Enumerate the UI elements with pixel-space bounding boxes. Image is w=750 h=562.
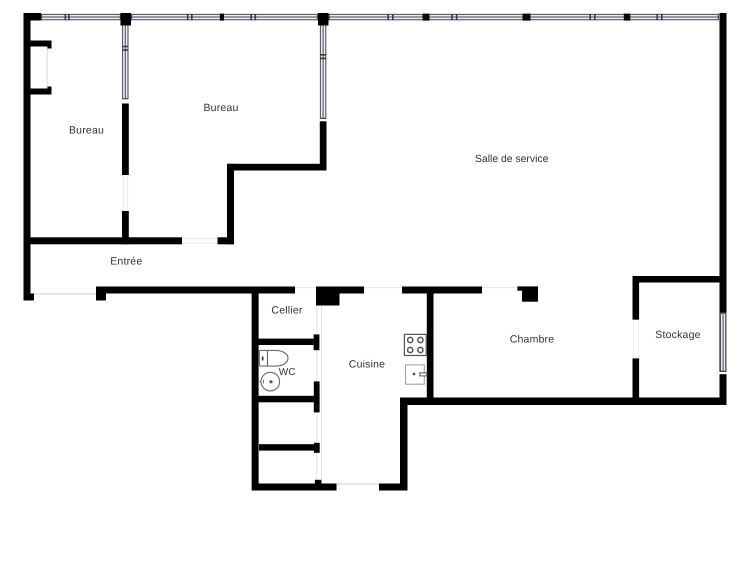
svg-text:Cellier: Cellier: [271, 305, 302, 317]
svg-text:Stockage: Stockage: [655, 329, 700, 341]
svg-text:Bureau: Bureau: [69, 125, 104, 137]
svg-text:Bureau: Bureau: [203, 102, 238, 114]
svg-text:Entrée: Entrée: [110, 256, 142, 268]
svg-text:Chambre: Chambre: [510, 334, 555, 346]
svg-text:Cuisine: Cuisine: [349, 359, 385, 371]
svg-text:Salle de service: Salle de service: [475, 154, 549, 165]
svg-text:WC: WC: [279, 367, 296, 378]
